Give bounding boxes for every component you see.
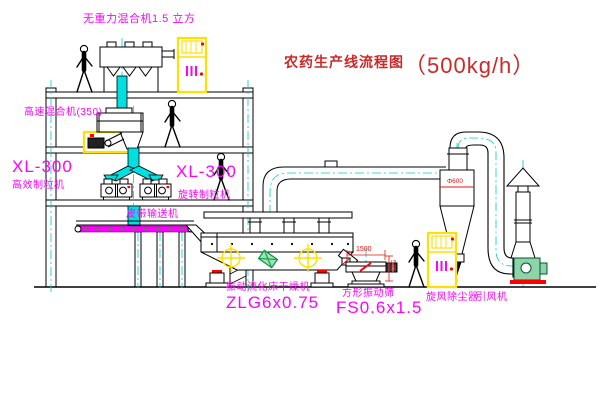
label-dryer-model: ZLG6x0.75	[226, 294, 319, 311]
label-granulator-right-name: 旋转制粒机	[178, 191, 231, 201]
fluid-bed-dryer-machine	[201, 212, 358, 287]
worker-figure-second-floor	[165, 100, 180, 147]
dimension-screen-length: 1500	[356, 246, 372, 253]
process-flow-drawing: 农药生产线流程图（500kg/h） 无重力混合机1.5 立方 高速混合机(350…	[0, 0, 600, 403]
label-cyclone: 旋风除尘器	[426, 293, 479, 303]
granulator-machine-left	[100, 179, 133, 200]
worker-figure-top-floor	[77, 45, 92, 92]
dryer-exhaust-duct	[263, 161, 446, 212]
label-fan: 引风机	[476, 293, 508, 303]
drawing-title: 农药生产线流程图（500kg/h）	[284, 48, 535, 80]
label-dryer-name: 振动流化床干燥机	[226, 283, 310, 293]
label-screen-model: FS0.6x1.5	[336, 299, 423, 316]
label-granulator-left-model: XL-300	[12, 158, 73, 175]
exhaust-stack	[507, 168, 539, 258]
label-granulator-right-model: XL-300	[176, 163, 237, 180]
draft-fan-machine	[510, 258, 547, 284]
label-granulator-left-name: 高效制粒机	[12, 181, 65, 191]
control-cabinet-ground	[428, 233, 456, 287]
worker-figure-ground	[409, 240, 424, 287]
label-high-speed-mixer: 高速混合机(350)	[24, 108, 102, 118]
dimension-cyclone-diameter: Φ600	[447, 179, 463, 186]
dimension-screen-height: 545	[389, 260, 396, 272]
weightless-mixer-machine	[100, 42, 174, 113]
granulator-machine-right	[139, 179, 172, 200]
label-weightless-mixer: 无重力混合机1.5 立方	[83, 14, 195, 25]
label-belt-conveyor: 皮带输送机	[126, 210, 179, 220]
control-cabinet-top	[178, 38, 206, 92]
drawing-title-text: 农药生产线流程图	[284, 54, 404, 70]
drawing-title-capacity: （500kg/h）	[404, 53, 535, 78]
